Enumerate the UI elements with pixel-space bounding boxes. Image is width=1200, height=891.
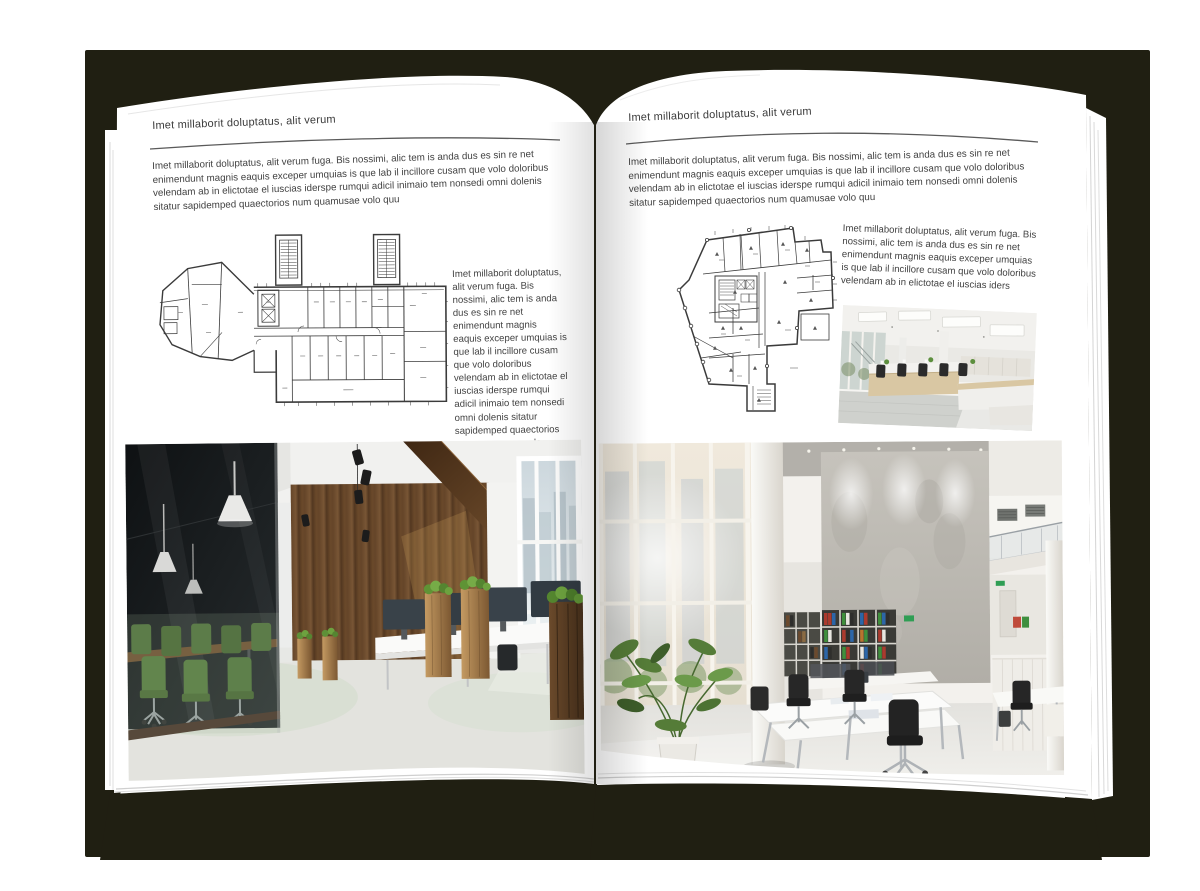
right-page-photo	[599, 440, 1064, 791]
office-photo-small	[838, 305, 1037, 431]
office-photo-atrium	[599, 440, 1064, 791]
left-page-photo	[125, 440, 585, 790]
magazine-spread-mockup: Imet millaborit doluptatus, alit verum I…	[0, 0, 1200, 891]
floor-plan-left	[158, 231, 449, 419]
right-page-photo-small	[838, 305, 1037, 431]
right-page-side-text: Imet millaborit doluptatus, alit verum f…	[841, 222, 1039, 294]
left-page-side-text: Imet millaborit doluptatus, alit verum f…	[452, 266, 569, 451]
office-photo-loft	[125, 440, 585, 790]
right-page-intro: Imet millaborit doluptatus, alit verum f…	[628, 146, 1047, 211]
floor-plan-right	[645, 218, 838, 415]
